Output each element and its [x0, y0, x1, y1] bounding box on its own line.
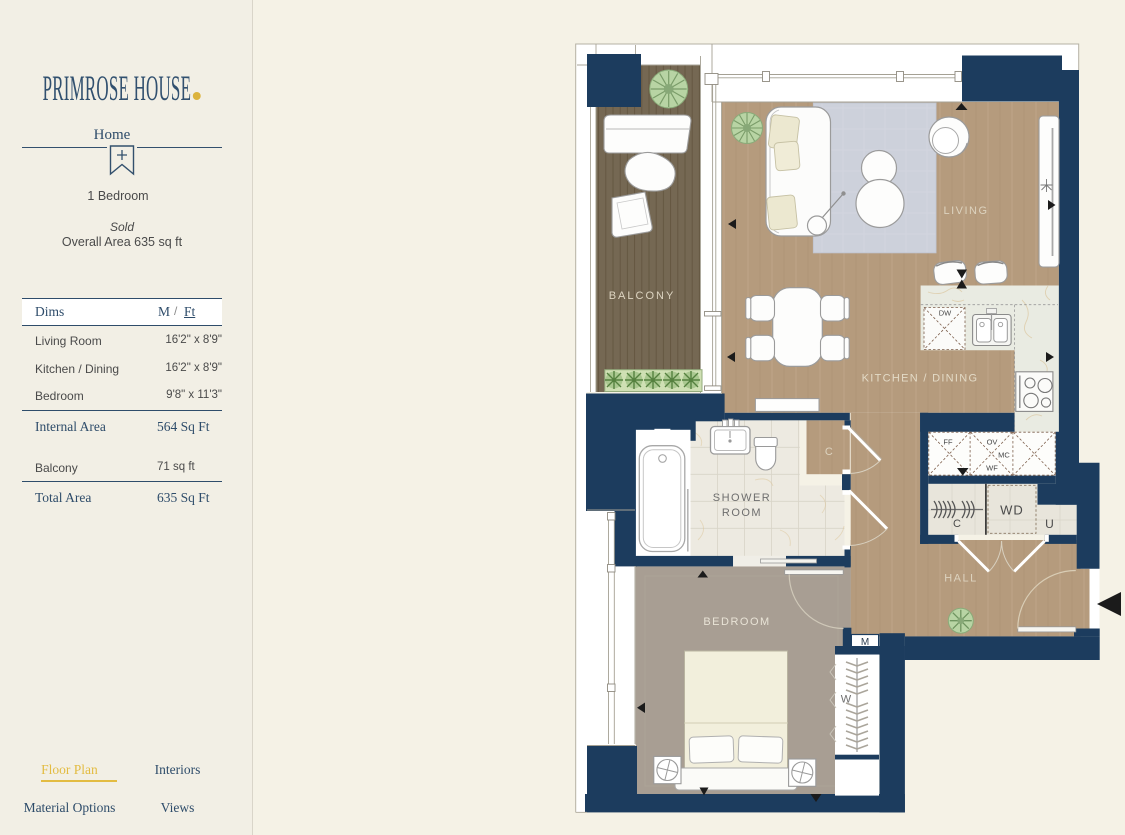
- svg-text:MC: MC: [998, 451, 1010, 460]
- svg-text:BEDROOM: BEDROOM: [703, 616, 770, 628]
- svg-text:KITCHEN / DINING: KITCHEN / DINING: [862, 373, 979, 385]
- svg-text:BALCONY: BALCONY: [609, 290, 676, 302]
- svg-text:M: M: [861, 637, 869, 648]
- svg-text:FF: FF: [943, 438, 953, 447]
- svg-text:ROOM: ROOM: [722, 507, 762, 519]
- svg-text:SHOWER: SHOWER: [713, 492, 772, 504]
- svg-text:C: C: [953, 518, 961, 530]
- svg-text:HALL: HALL: [944, 573, 978, 585]
- svg-text:WD: WD: [1000, 503, 1024, 518]
- svg-text:DW: DW: [939, 309, 952, 318]
- svg-text:W: W: [841, 694, 852, 706]
- svg-text:LIVING: LIVING: [943, 205, 988, 217]
- svg-text:U: U: [1045, 517, 1054, 531]
- svg-text:OV: OV: [987, 438, 998, 447]
- svg-text:WF: WF: [986, 464, 998, 473]
- svg-text:C: C: [825, 446, 833, 458]
